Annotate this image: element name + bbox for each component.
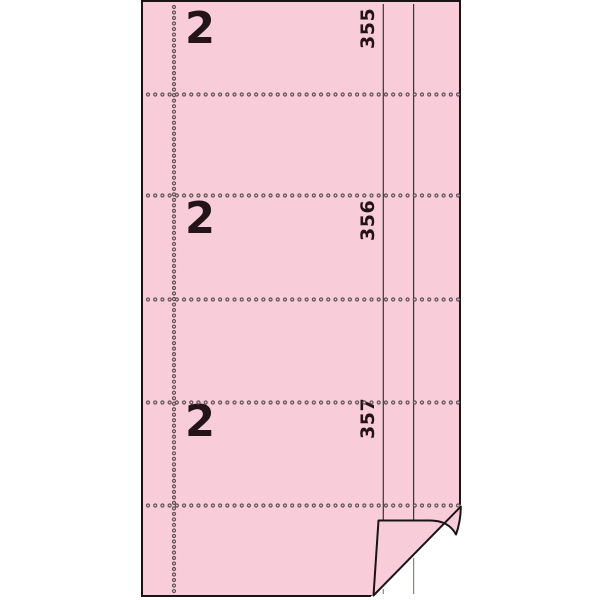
ticket-row: 2 359	[143, 402, 459, 505]
ticket-row: 2 355	[143, 2, 459, 94]
serial-number: 355	[348, 9, 388, 49]
ticket-row: 2 360	[143, 505, 459, 597]
ticket-row: 2 356	[143, 94, 459, 195]
sales-book-page: 2 355 2 356 2 357 2 358 2 359 2 360	[141, 0, 461, 597]
product-photo: 2 355 2 356 2 357 2 358 2 359 2 360	[0, 0, 600, 600]
quantity-label: 2	[185, 7, 244, 51]
ticket-row: 2 358	[143, 299, 459, 402]
ticket-row: 2 357	[143, 195, 459, 299]
